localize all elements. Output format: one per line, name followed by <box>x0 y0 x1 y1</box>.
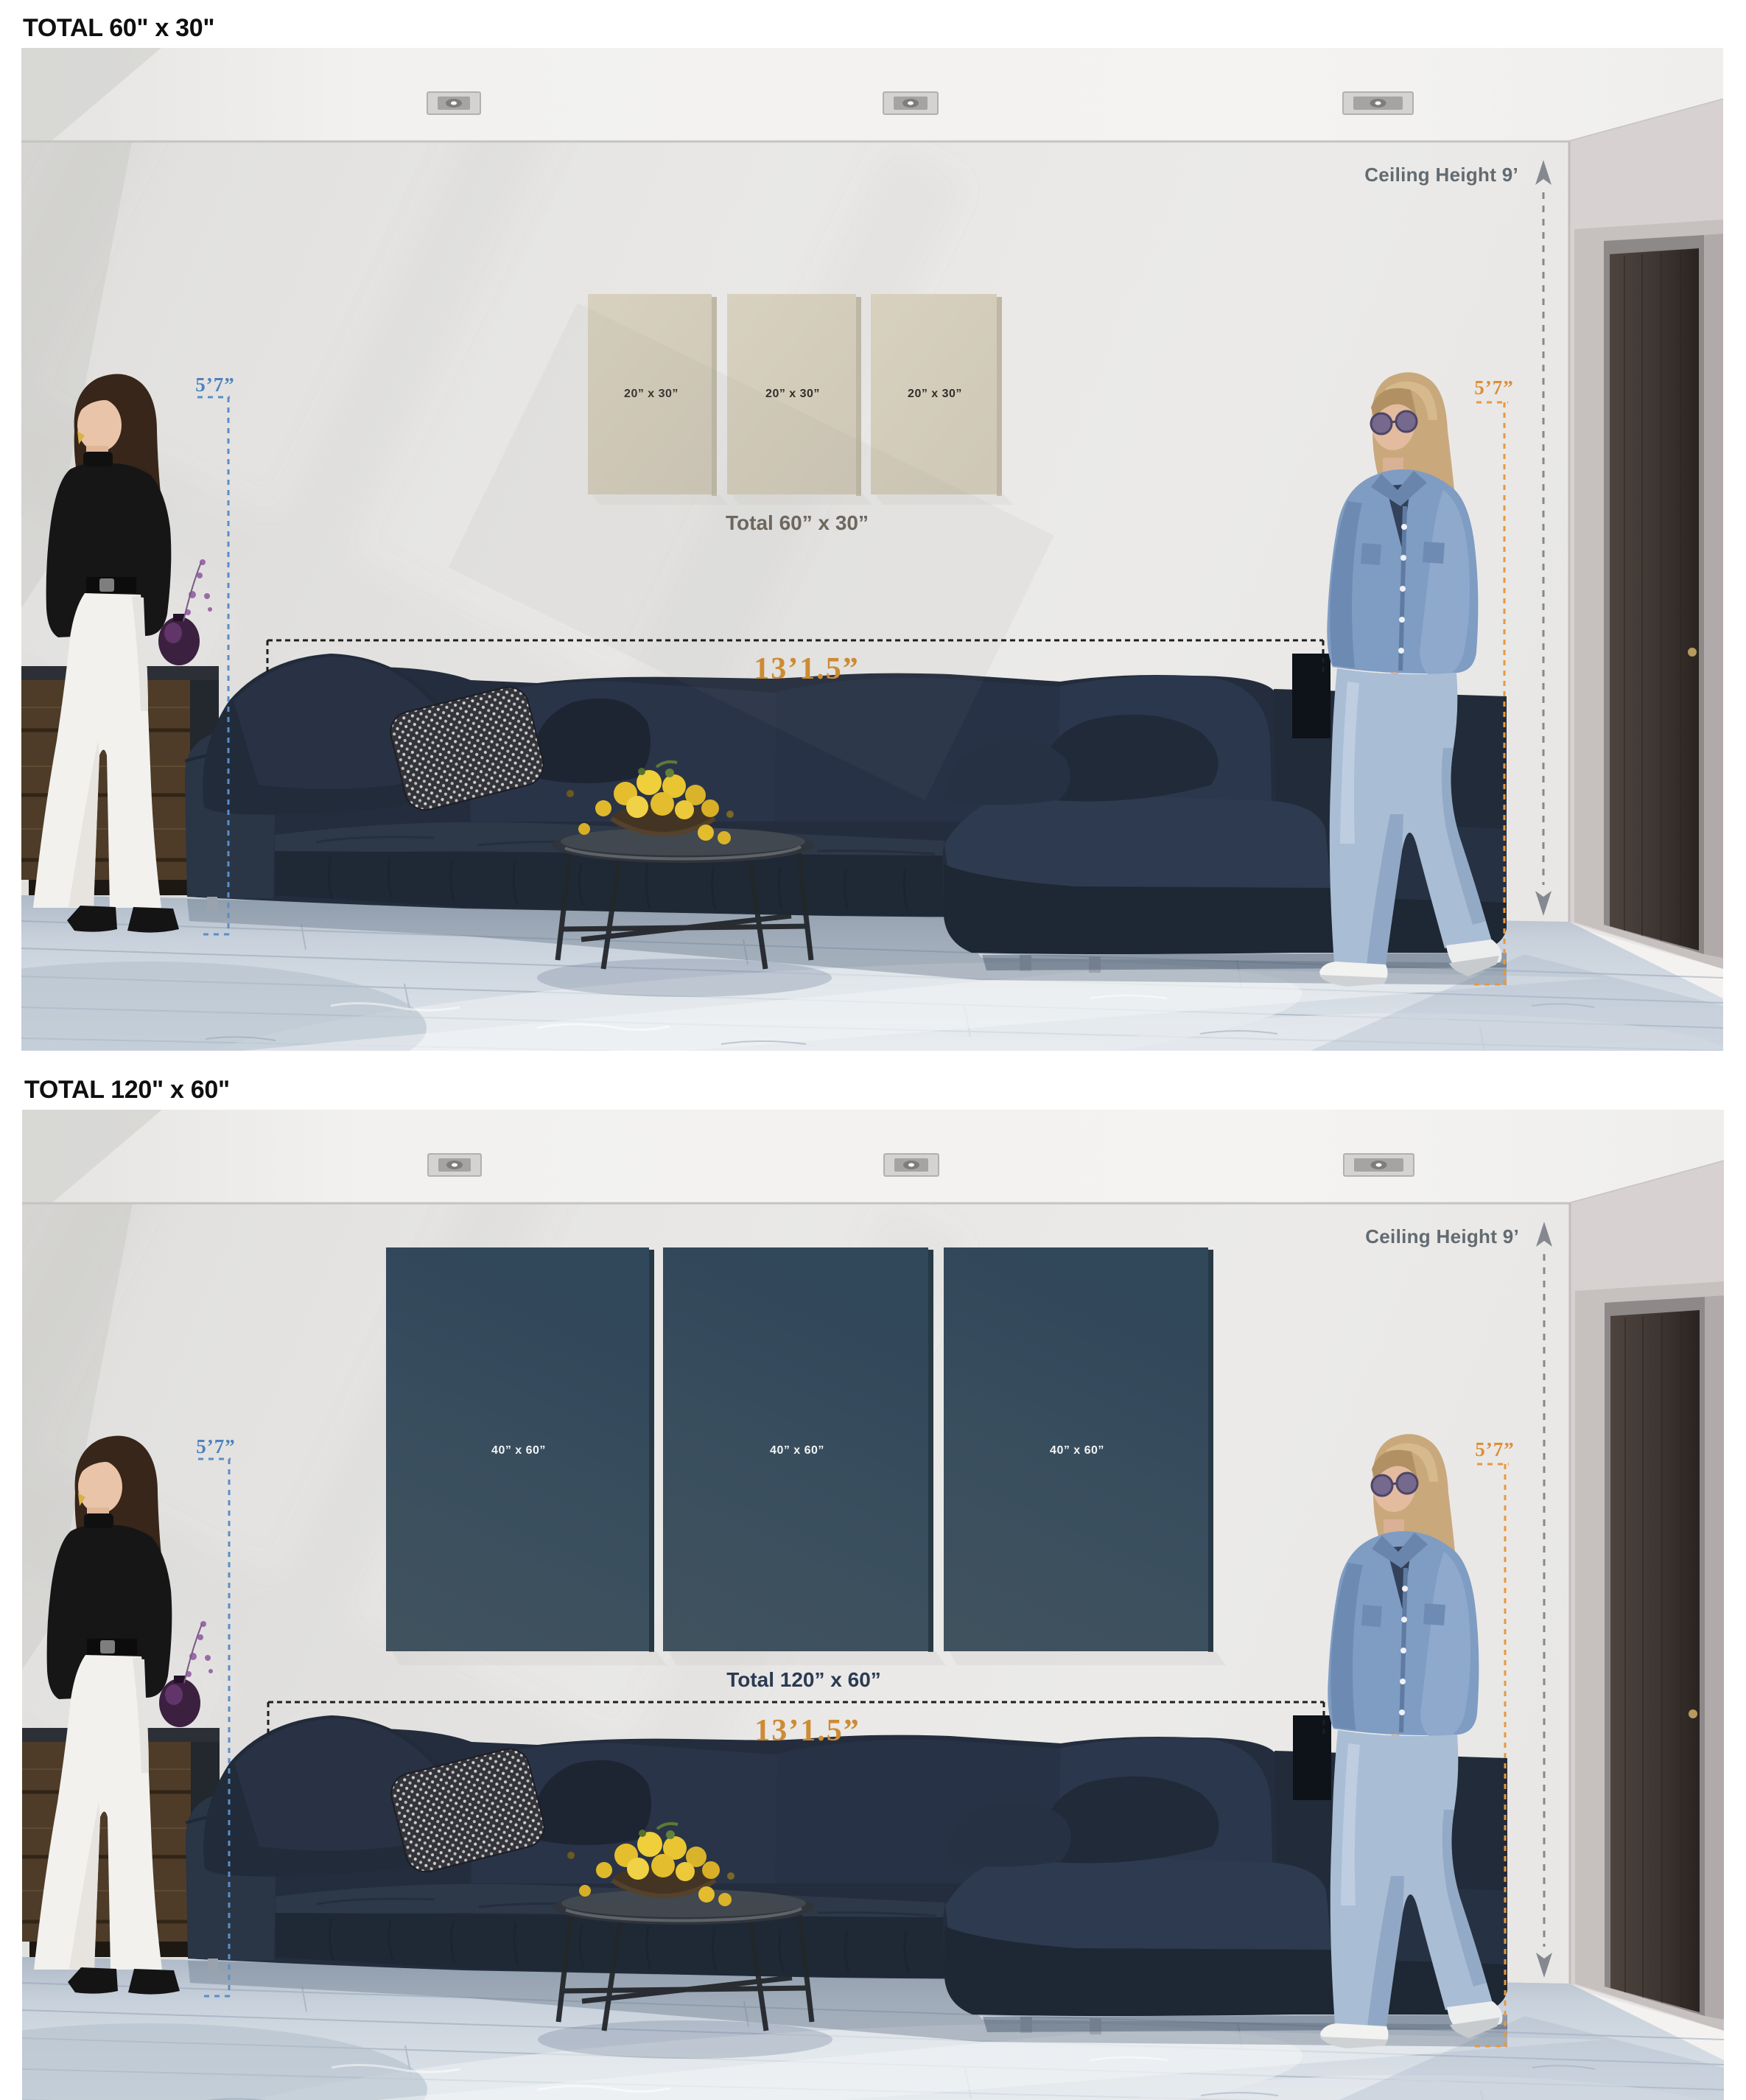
svg-text:Ceiling Height 9’: Ceiling Height 9’ <box>1364 164 1518 186</box>
svg-text:Ceiling Height 9’: Ceiling Height 9’ <box>1365 1225 1519 1247</box>
svg-text:40” x 60”: 40” x 60” <box>770 1444 824 1457</box>
svg-text:5’7”: 5’7” <box>195 374 235 396</box>
svg-text:20” x 30”: 20” x 30” <box>908 388 962 400</box>
svg-text:40” x 60”: 40” x 60” <box>491 1444 546 1457</box>
svg-text:13’1.5”: 13’1.5” <box>754 1714 860 1748</box>
svg-text:5’7”: 5’7” <box>1474 377 1514 399</box>
svg-text:13’1.5”: 13’1.5” <box>754 652 860 686</box>
svg-text:40” x 60”: 40” x 60” <box>1050 1444 1104 1457</box>
svg-text:Total 60” x 30”: Total 60” x 30” <box>726 511 869 534</box>
svg-text:5’7”: 5’7” <box>1475 1438 1515 1460</box>
svg-text:Total 120” x 60”: Total 120” x 60” <box>726 1668 881 1691</box>
svg-text:20” x 30”: 20” x 30” <box>765 388 820 400</box>
svg-text:5’7”: 5’7” <box>196 1435 236 1457</box>
